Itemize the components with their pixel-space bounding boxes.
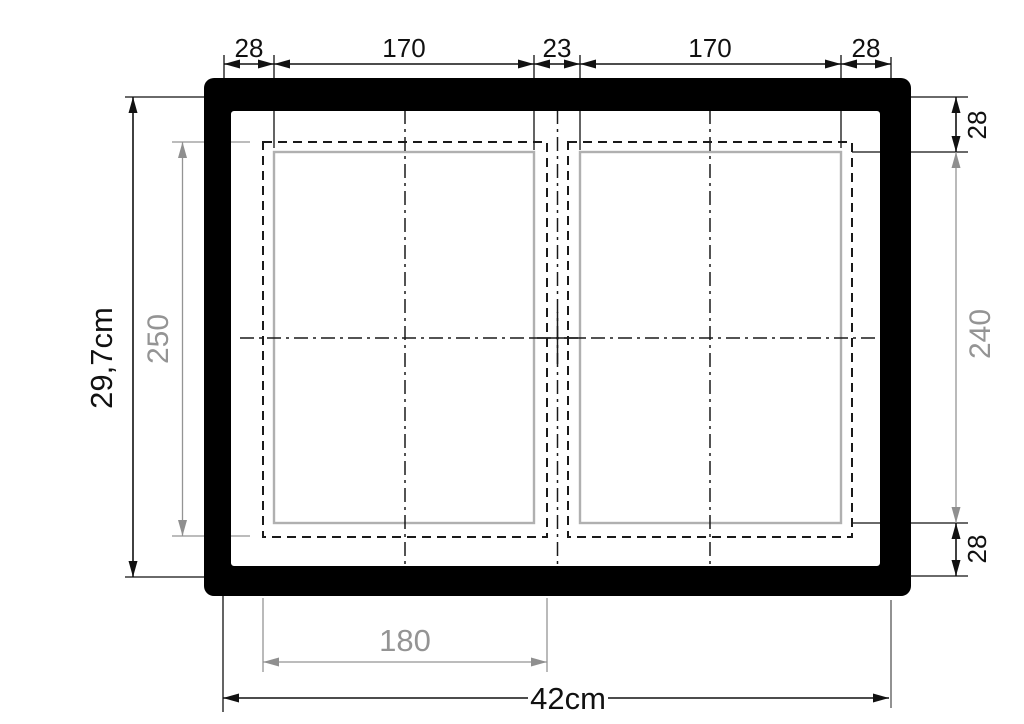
technical-drawing-canvas: 28 170 23 170 28 29,7cm 250 28 240 28 [0, 0, 1024, 724]
arrow [952, 152, 961, 168]
dim-label-outer-width: 42cm [530, 681, 606, 716]
bottom-inner-width-dimension: 180 [263, 598, 547, 672]
arrow [825, 60, 841, 69]
right-dimension-chain: 28 240 28 [910, 97, 997, 576]
dim-label-top-right-28: 28 [852, 33, 881, 63]
dim-label-top-170-right: 170 [688, 33, 731, 63]
arrow [952, 136, 961, 152]
arrow [263, 658, 279, 667]
dim-label-right-bottom-inset: 28 [962, 535, 992, 564]
arrow [952, 97, 961, 113]
arrow [580, 60, 596, 69]
left-inner-height-dimension: 250 [142, 142, 187, 536]
arrow [531, 658, 547, 667]
arrow [952, 523, 961, 539]
arrow [952, 507, 961, 523]
dim-label-top-23: 23 [543, 33, 572, 63]
arrow [952, 560, 961, 576]
arrow [178, 520, 187, 536]
arrow [223, 694, 239, 703]
hidden-extension-lines [172, 55, 968, 536]
top-dimension-chain: 28 170 23 170 28 [224, 33, 891, 78]
frame-drawing-svg: 28 170 23 170 28 29,7cm 250 28 240 28 [0, 0, 1024, 724]
arrow [873, 694, 889, 703]
arrow [274, 60, 290, 69]
dim-label-right-top-inset: 28 [962, 111, 992, 140]
bottom-outer-width-dimension: 42cm [223, 596, 891, 716]
arrow [178, 142, 187, 158]
dim-label-inner-width-bottom: 180 [379, 623, 431, 658]
centerlines [240, 110, 877, 564]
dim-label-outer-height: 29,7cm [84, 307, 119, 409]
dim-label-top-170-left: 170 [382, 33, 425, 63]
arrow [518, 60, 534, 69]
dim-label-inner-height-left: 250 [142, 314, 175, 364]
dim-label-inner-height-right: 240 [964, 309, 997, 359]
arrow [129, 97, 138, 113]
arrow [129, 561, 138, 577]
dim-label-top-left-28: 28 [235, 33, 264, 63]
